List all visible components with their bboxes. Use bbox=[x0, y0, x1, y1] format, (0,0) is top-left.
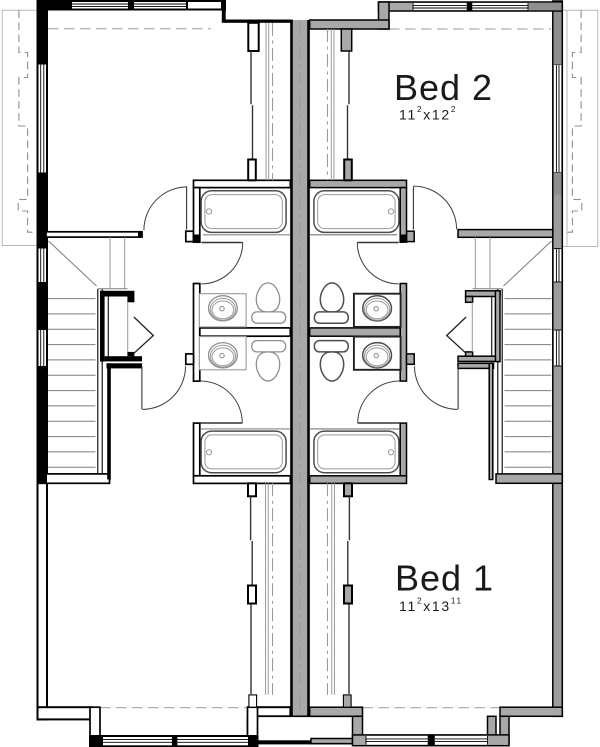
svg-text:Bed 1: Bed 1 bbox=[395, 558, 494, 599]
svg-text:112x122: 112x122 bbox=[399, 105, 457, 123]
svg-text:Bed 2: Bed 2 bbox=[394, 67, 493, 108]
